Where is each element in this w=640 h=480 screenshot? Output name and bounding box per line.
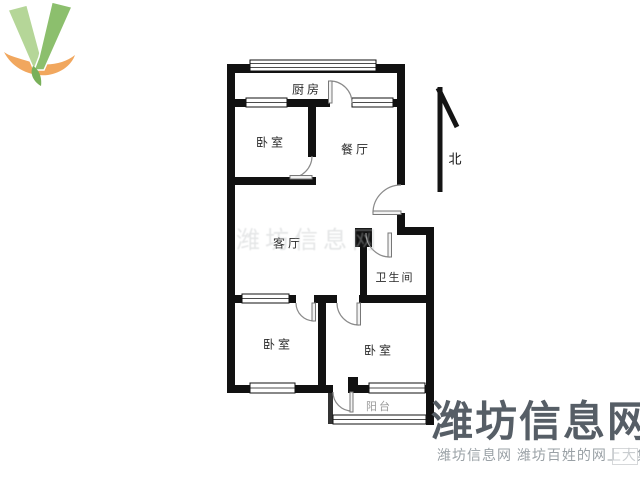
window-balcony bbox=[333, 415, 426, 424]
room-label-balcony: 阳台 bbox=[366, 398, 392, 414]
window-bedroom-southwest bbox=[250, 383, 295, 393]
door-bedroom-north bbox=[290, 156, 312, 179]
room-label-bedroom-southeast: 卧室 bbox=[364, 342, 394, 359]
window-north bbox=[250, 60, 376, 71]
room-label-dining: 餐厅 bbox=[341, 141, 371, 158]
window-kitchen-left bbox=[246, 98, 287, 107]
wall-stub bbox=[348, 377, 358, 393]
site-logo-v-icon bbox=[0, 0, 78, 88]
room-label-bedroom-southwest: 卧室 bbox=[263, 336, 293, 353]
room-label-bedroom-north: 卧室 bbox=[256, 134, 286, 151]
window-bedroom-southeast bbox=[369, 383, 425, 393]
room-label-kitchen: 厨房 bbox=[292, 81, 322, 98]
watermark-stamp-box bbox=[612, 448, 638, 465]
door-balcony bbox=[333, 392, 353, 412]
floorplan-image: 厨房 卧室 餐厅 客厅 卫生间 卧室 卧室 阳台 北 潍坊信息网 潍坊信息网 潍… bbox=[0, 0, 640, 480]
window-kitchen-right bbox=[352, 98, 393, 107]
window-living-divider bbox=[242, 294, 289, 303]
compass-north-label: 北 bbox=[448, 149, 461, 168]
door-bedroom-southeast bbox=[337, 303, 361, 325]
room-label-bathroom: 卫生间 bbox=[376, 269, 415, 285]
door-entry bbox=[373, 185, 401, 215]
north-arrow-icon bbox=[438, 87, 457, 192]
faint-watermark-text: 潍坊信息网 bbox=[236, 220, 381, 255]
balcony-walls bbox=[328, 393, 333, 424]
door-bedroom-southwest bbox=[296, 303, 316, 321]
site-watermark-title: 潍坊信息网 bbox=[431, 401, 640, 443]
site-watermark-tagline: 潍坊信息网 潍坊百姓的网上大集 bbox=[437, 447, 640, 464]
